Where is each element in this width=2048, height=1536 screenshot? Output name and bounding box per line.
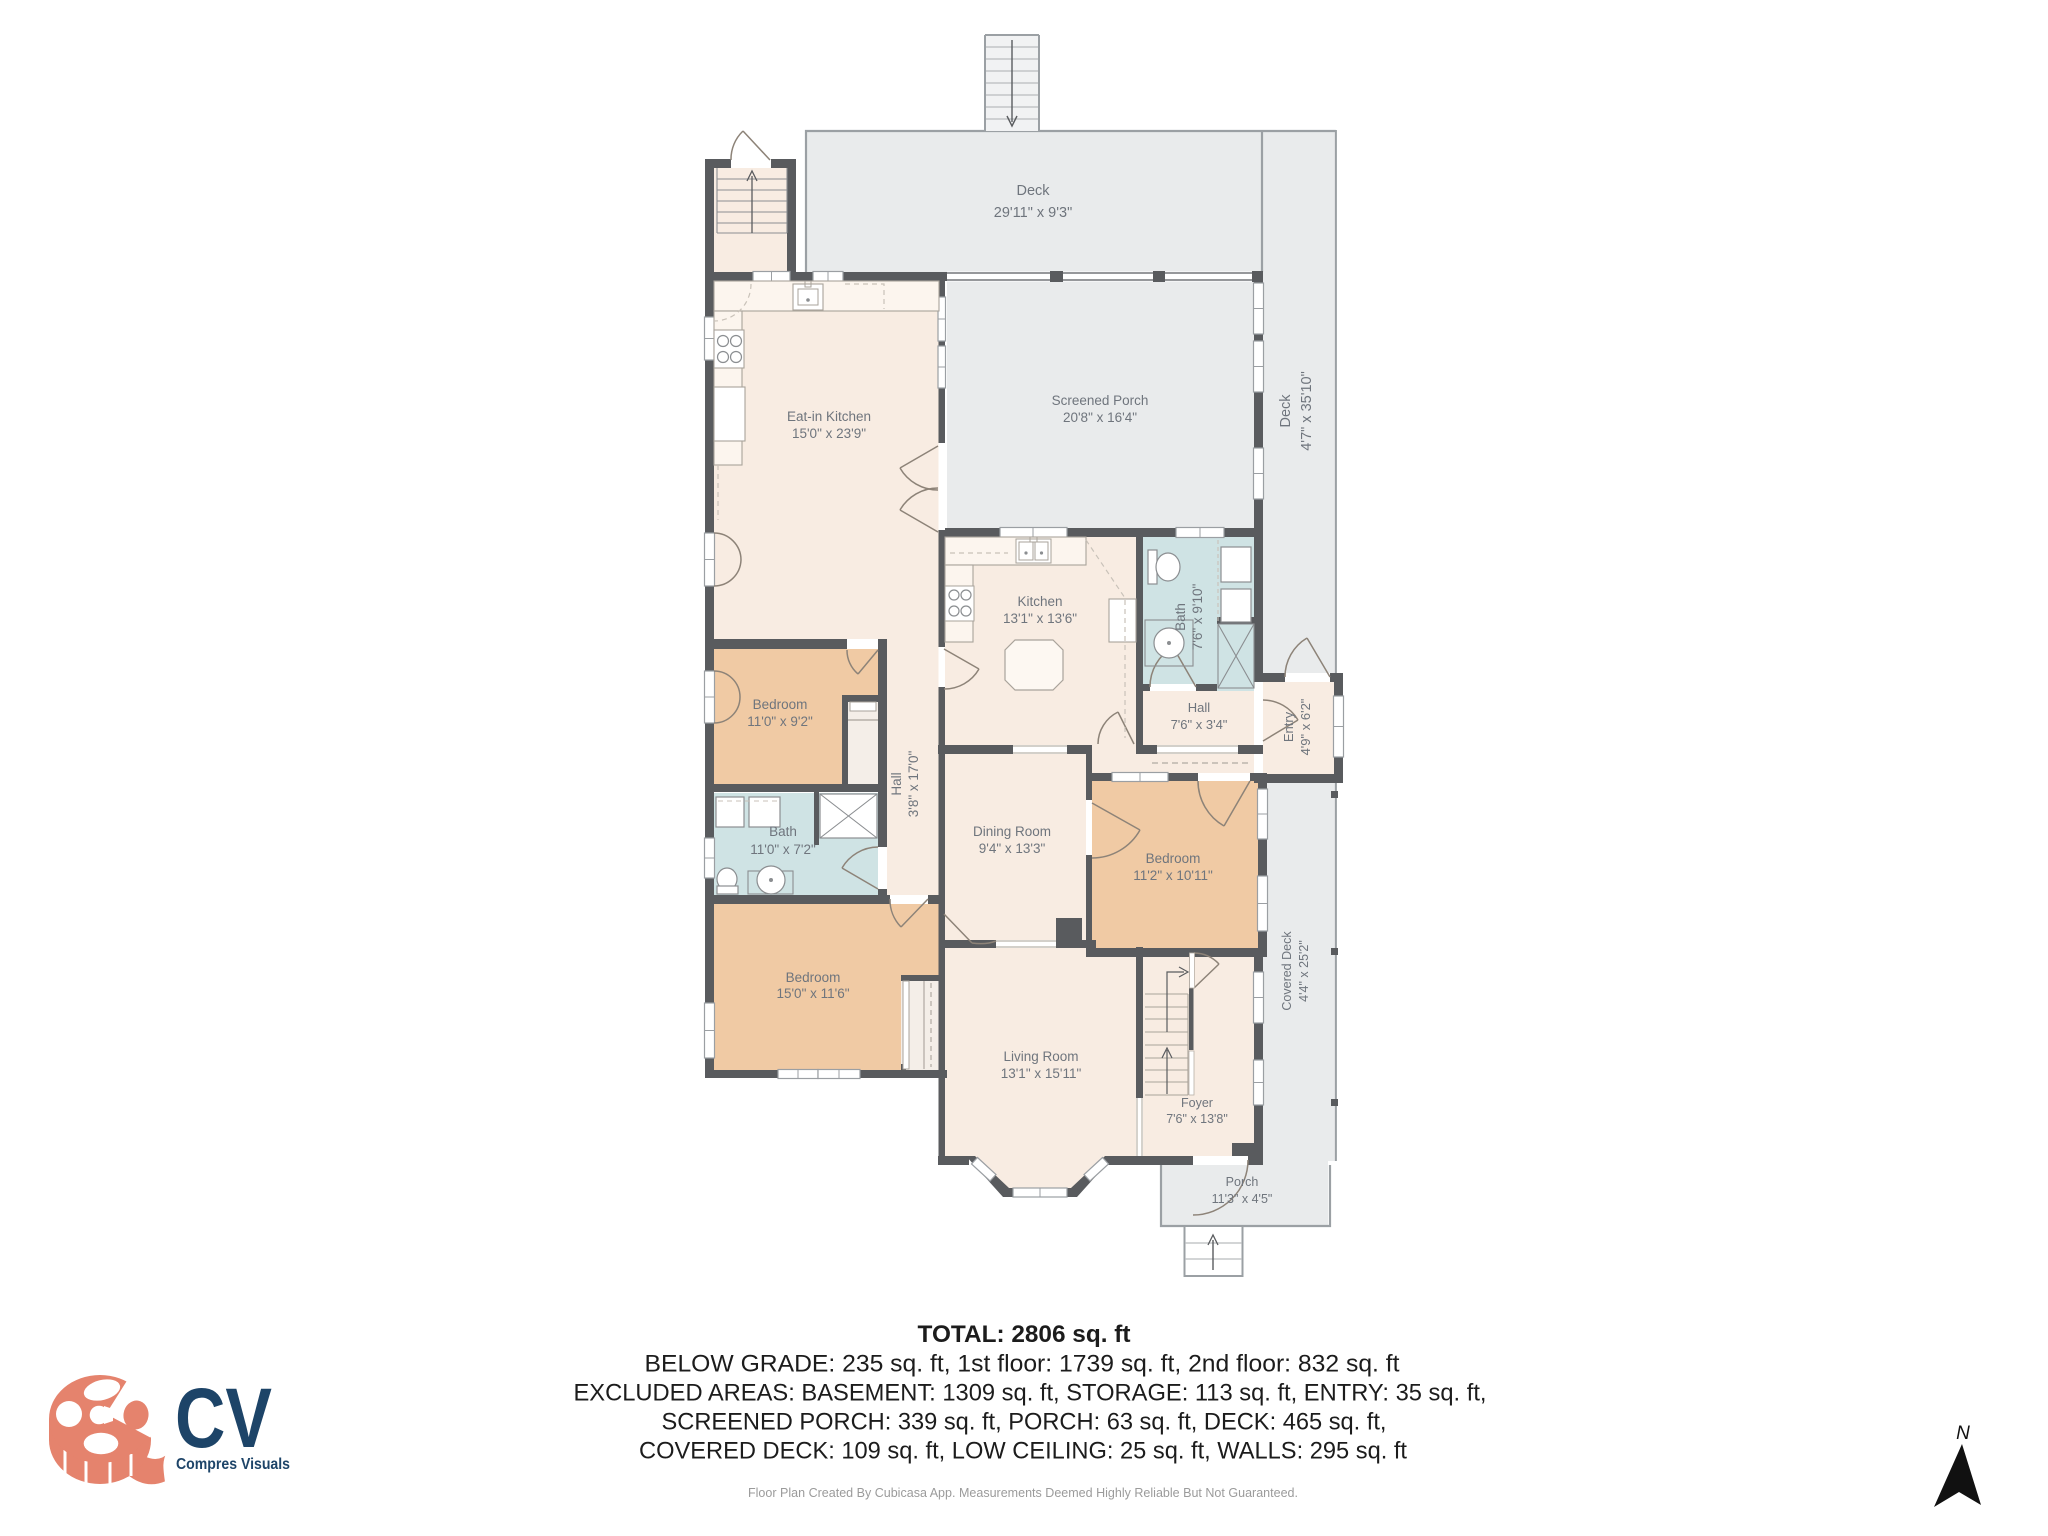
svg-text:15'0" x 11'6": 15'0" x 11'6" [776,986,849,1001]
svg-text:Eat-in Kitchen: Eat-in Kitchen [787,409,871,424]
svg-text:Floor Plan Created By Cubicasa: Floor Plan Created By Cubicasa App. Meas… [748,1486,1298,1500]
svg-text:EXCLUDED AREAS: BASEMENT: 1309: EXCLUDED AREAS: BASEMENT: 1309 sq. ft, S… [574,1380,1487,1407]
svg-text:15'0" x 23'9": 15'0" x 23'9" [792,426,866,441]
svg-text:20'8" x 16'4": 20'8" x 16'4" [1063,410,1137,425]
svg-text:Compres Visuals: Compres Visuals [176,1456,290,1473]
svg-text:CV: CV [175,1371,272,1465]
svg-text:TOTAL: 2806 sq. ft: TOTAL: 2806 sq. ft [918,1321,1131,1348]
svg-text:BELOW GRADE: 235 sq. ft, 1st f: BELOW GRADE: 235 sq. ft, 1st floor: 1739… [645,1351,1400,1378]
svg-text:N: N [1956,1423,1970,1444]
svg-text:Kitchen: Kitchen [1017,594,1062,609]
svg-text:Foyer: Foyer [1181,1096,1213,1110]
svg-text:29'11" x 9'3": 29'11" x 9'3" [994,205,1072,221]
svg-text:11'2" x 10'11": 11'2" x 10'11" [1133,868,1213,883]
svg-text:7'6" x 13'8": 7'6" x 13'8" [1166,1112,1228,1126]
svg-text:Bedroom: Bedroom [1146,851,1201,866]
svg-text:Screened Porch: Screened Porch [1052,393,1149,408]
svg-text:11'0" x 9'2": 11'0" x 9'2" [747,714,813,729]
svg-text:Bath: Bath [769,824,797,839]
svg-text:Bedroom: Bedroom [753,697,808,712]
svg-text:7'6" x 3'4": 7'6" x 3'4" [1171,717,1228,732]
svg-text:11'0" x 7'2": 11'0" x 7'2" [750,842,816,857]
svg-text:Porch: Porch [1226,1175,1259,1189]
svg-text:COVERED DECK: 109 sq. ft, LOW: COVERED DECK: 109 sq. ft, LOW CEILING: 2… [639,1438,1407,1465]
svg-text:Deck: Deck [1016,183,1050,199]
svg-text:Living Room: Living Room [1003,1049,1078,1064]
svg-text:13'1" x 13'6": 13'1" x 13'6" [1003,611,1077,626]
svg-text:Bedroom: Bedroom [786,970,841,985]
svg-text:SCREENED PORCH: 339 sq. ft, PO: SCREENED PORCH: 339 sq. ft, PORCH: 63 sq… [662,1409,1387,1436]
svg-text:13'1" x 15'11": 13'1" x 15'11" [1001,1066,1082,1081]
svg-text:9'4" x 13'3": 9'4" x 13'3" [979,841,1046,856]
svg-text:11'3" x 4'5": 11'3" x 4'5" [1212,1192,1273,1206]
svg-text:Hall: Hall [1188,700,1211,715]
svg-text:Dining Room: Dining Room [973,824,1051,839]
